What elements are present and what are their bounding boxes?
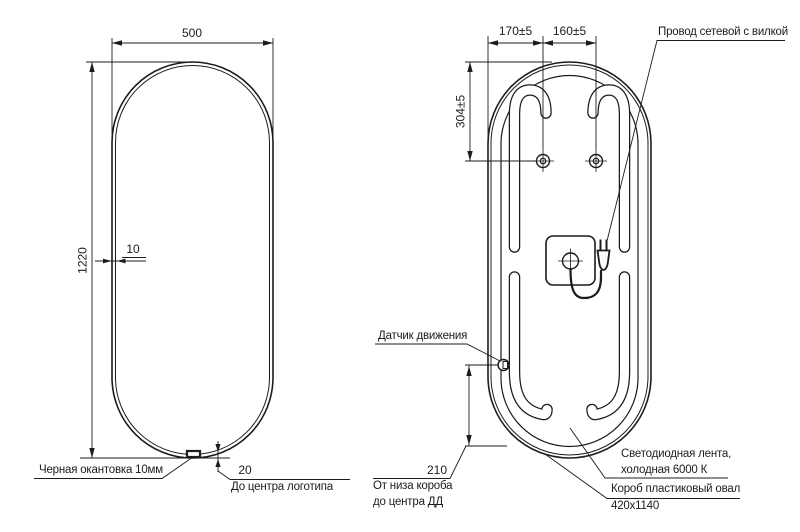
led-channel-right-upper <box>593 90 625 247</box>
dim-logo-20 <box>215 441 220 472</box>
label-sensor-note-line1: От низа короба <box>373 480 452 493</box>
technical-drawing-mirror: 500 1220 10 20 Черная окантовка 10мм До … <box>0 0 800 532</box>
label-sensor-note-line2: до центра ДД <box>373 496 443 509</box>
dim-text-width: 500 <box>152 27 232 40</box>
dim-edging-10 <box>95 258 146 264</box>
label-led-strip-line1: Светодиодная лента, <box>621 448 731 461</box>
dim-text-height: 1220 <box>77 241 90 281</box>
label-black-edging: Черная окантовка 10мм <box>39 464 163 477</box>
led-channel-left-upper <box>515 90 547 247</box>
mirror-front-outline <box>112 62 273 458</box>
led-channel-left-lower <box>515 277 548 415</box>
dim-width-500 <box>112 38 273 140</box>
dim-text-sensor-offset: 210 <box>417 464 457 477</box>
label-power-cord: Провод сетевой с вилкой <box>658 26 788 39</box>
dim-text-hole-spacing: 160±5 <box>542 25 597 38</box>
label-motion-sensor: Датчик движения <box>378 330 467 343</box>
mounting-hole-right <box>585 150 607 172</box>
dim-text-hole-offset: 170±5 <box>488 25 543 38</box>
led-channel-right-lower <box>592 277 625 415</box>
label-led-strip-line2: холодная 6000 К <box>621 464 707 477</box>
label-logo-center: До центра логотипа <box>231 481 333 494</box>
dim-height-1220 <box>80 62 230 458</box>
front-view <box>112 62 273 458</box>
leader-power-cord <box>607 41 785 242</box>
logo-mark <box>187 451 200 457</box>
leader-motion-sensor <box>375 344 500 361</box>
label-plastic-box-size: 420х1140 <box>611 500 659 513</box>
label-plastic-box: Короб пластиковый овал <box>611 483 740 496</box>
power-plug-icon <box>598 240 610 271</box>
dim-text-edging: 10 <box>113 243 153 256</box>
dim-sensor-from-box-bottom <box>373 365 507 479</box>
power-cord <box>571 269 602 298</box>
dim-text-hole-from-top: 304±5 <box>455 90 468 134</box>
black-edging-outline <box>116 66 270 455</box>
dim-text-logo-offset: 20 <box>230 464 260 477</box>
back-view <box>488 62 651 458</box>
